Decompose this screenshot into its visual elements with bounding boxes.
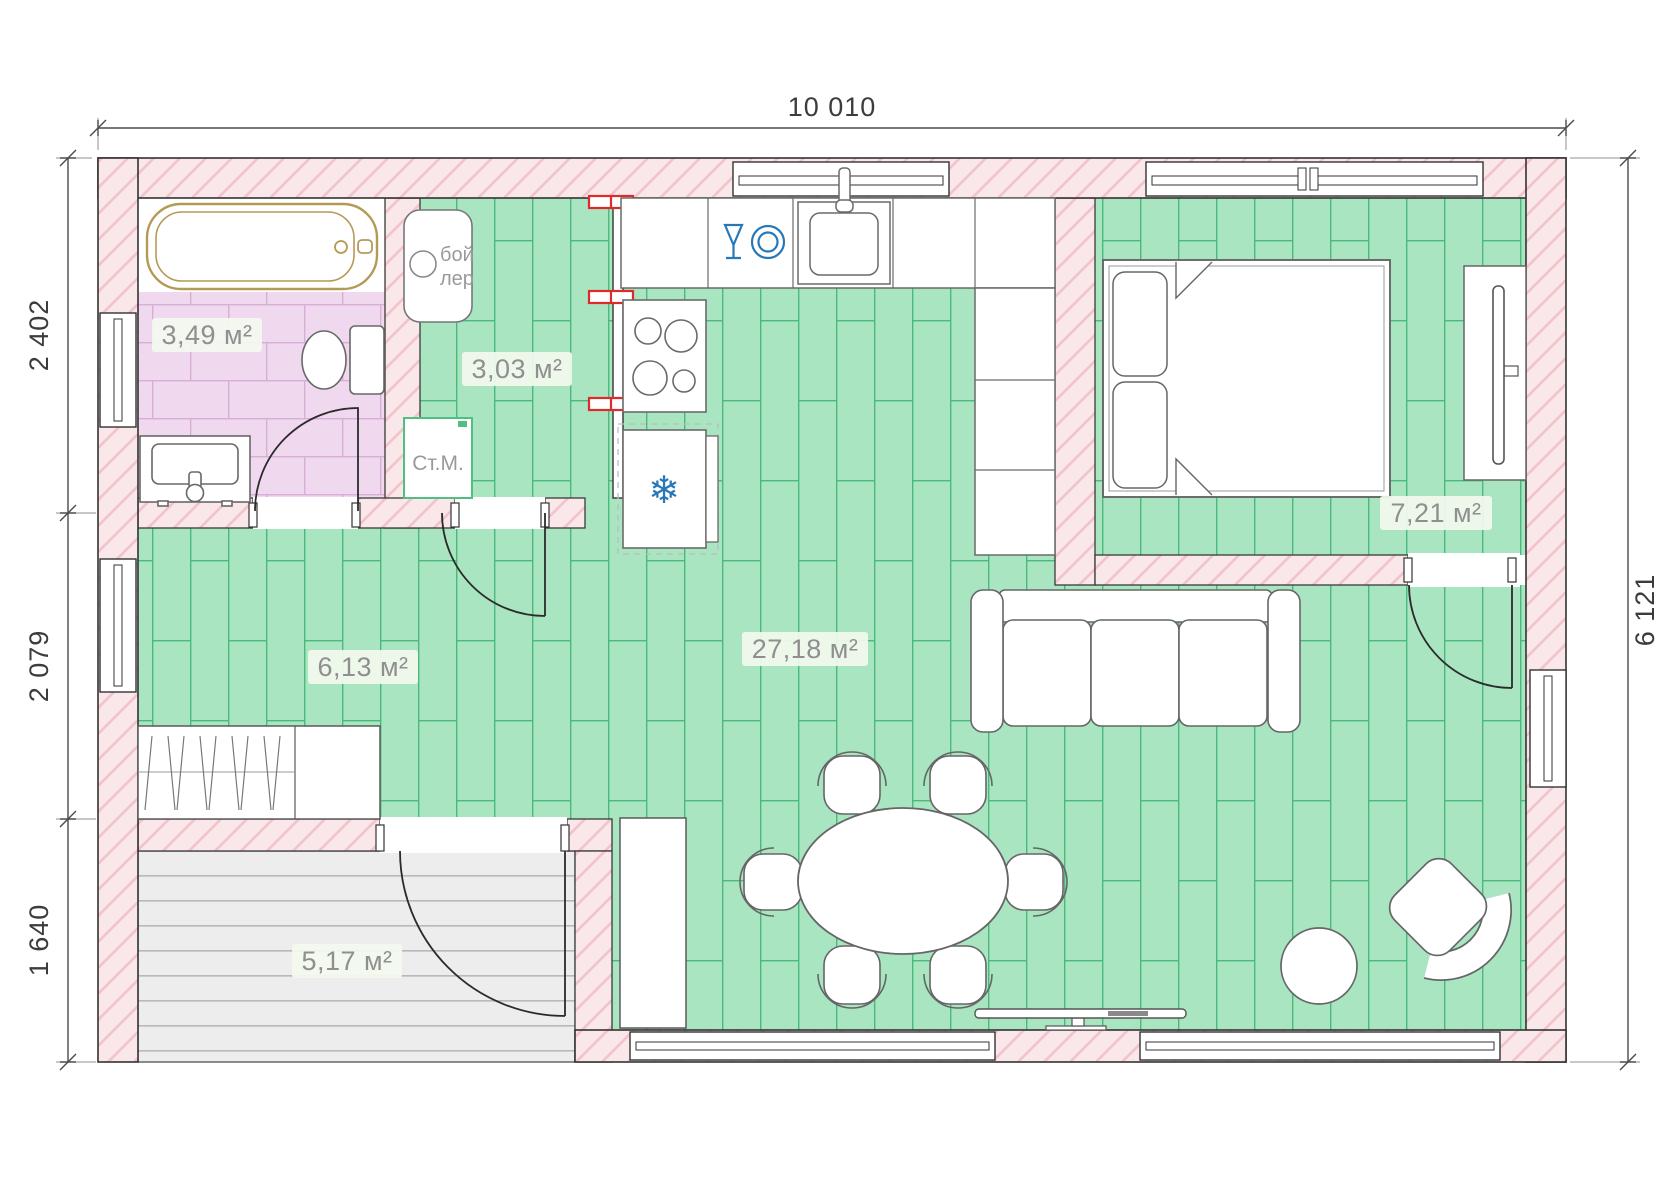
wall-bedroom-west	[1055, 198, 1095, 585]
dimension-left-middle-text: 2 079	[24, 630, 54, 703]
dimension-left-lower-text: 1 640	[24, 904, 54, 977]
area-label-hallway: 6,13 м²	[308, 650, 418, 684]
sofa-cushion	[1003, 620, 1091, 726]
storage-cabinet	[620, 818, 686, 1028]
dining-chair	[1005, 848, 1067, 916]
dining-chair	[924, 946, 992, 1008]
boiler-label-line2: лер	[440, 268, 474, 290]
sofa-armrest	[1268, 590, 1300, 732]
living-kitchen-area-text: 27,18 м²	[752, 634, 859, 664]
area-label-terrace: 5,17 м²	[292, 944, 402, 978]
sofa-armrest	[971, 590, 1003, 732]
washing-machine-label: Ст.М.	[412, 452, 464, 475]
toilet-tank	[350, 326, 384, 394]
bathtub-faucet	[358, 240, 372, 253]
threshold-boiler	[455, 497, 545, 529]
sofa-cushion	[1179, 620, 1267, 726]
hallway-area-text: 6,13 м²	[317, 652, 408, 682]
stove	[623, 300, 706, 412]
wall-bathroom-south-right	[358, 498, 455, 528]
wardrobe	[138, 726, 380, 819]
dining-chair	[818, 752, 886, 814]
door-jamb	[1404, 558, 1412, 582]
window-living-south-right	[1140, 1032, 1500, 1060]
dining-table	[798, 808, 1008, 954]
wall-boiler-south-right	[545, 498, 585, 528]
dimension-right-text: 6 121	[1630, 574, 1660, 647]
terrace-area-text: 5,17 м²	[301, 946, 392, 976]
boiler-unit: бой лер	[404, 210, 474, 322]
threshold-bedroom	[1408, 553, 1520, 587]
pillow	[1113, 382, 1167, 488]
door-jamb	[376, 825, 384, 851]
dining-chair	[818, 946, 886, 1008]
bedroom-dresser-tv	[1464, 266, 1526, 480]
floor-plan-page: бой лер Ст.М. ❄	[0, 0, 1680, 1188]
floor-plan-drawing: бой лер Ст.М. ❄	[0, 0, 1680, 1188]
dimension-left	[60, 150, 76, 1070]
wall-terrace-north-left	[138, 819, 380, 851]
pillow	[1113, 272, 1167, 376]
boiler-icon	[410, 251, 436, 277]
kitchen-cabinet-column	[975, 288, 1055, 555]
bathtub	[147, 204, 377, 289]
dimension-top	[90, 120, 1574, 136]
boiler-room-area-text: 3,03 м²	[471, 354, 562, 384]
window-living-south-left	[630, 1032, 995, 1060]
window-bathroom-west	[100, 313, 136, 427]
threshold-bathroom	[253, 497, 358, 529]
sofa-back	[999, 590, 1272, 622]
wall-bedroom-south	[1095, 555, 1408, 585]
bedroom-area-text: 7,21 м²	[1390, 498, 1481, 528]
boiler-label-line1: бой	[440, 244, 474, 266]
threshold-terrace	[380, 817, 567, 853]
wall-terrace-north-post	[567, 819, 612, 851]
washbasin	[140, 436, 250, 506]
dimension-top-text: 10 010	[788, 92, 877, 122]
area-label-bedroom: 7,21 м²	[1380, 496, 1492, 530]
tv-bedroom-mount	[1504, 366, 1518, 376]
bathtub-drain	[335, 241, 347, 253]
area-label-bathroom: 3,49 м²	[152, 318, 262, 352]
toilet-bowl	[302, 331, 346, 389]
door-jamb	[561, 825, 569, 851]
wall-east	[1526, 158, 1566, 1062]
side-table	[1281, 928, 1357, 1004]
dimension-left-upper-text: 2 402	[24, 299, 54, 372]
dining-chair	[740, 848, 802, 916]
area-label-boiler-room: 3,03 м²	[462, 352, 572, 386]
washing-machine: Ст.М.	[404, 418, 472, 498]
fridge: ❄	[618, 424, 718, 554]
sofa-cushion	[1091, 620, 1179, 726]
dining-chair	[924, 752, 992, 814]
bathroom-area-text: 3,49 м²	[161, 320, 252, 350]
freezer-snowflake-icon: ❄	[648, 470, 680, 512]
window-hallway-west	[100, 559, 136, 692]
window-living-east	[1530, 670, 1566, 787]
sofa	[971, 590, 1300, 732]
window-bedroom-north	[1146, 162, 1483, 196]
area-label-living-kitchen: 27,18 м²	[742, 632, 868, 666]
door-jamb	[451, 503, 459, 527]
tv-bedroom	[1493, 286, 1504, 464]
door-jamb	[1508, 558, 1516, 582]
double-bed	[1103, 260, 1390, 497]
